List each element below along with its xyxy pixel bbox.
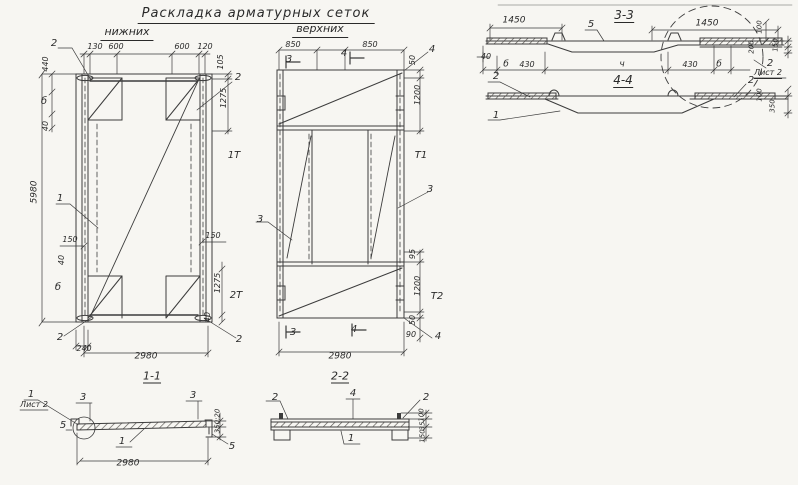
callout-mesh-2: 2: [235, 73, 241, 83]
section-title: 2-2: [331, 371, 349, 384]
dim-label: 430: [519, 61, 534, 69]
dim-label: 600: [108, 43, 123, 51]
callout-mesh-1: 1: [119, 437, 125, 447]
section-mark-1: Т1: [415, 151, 427, 161]
dim-label: 430: [682, 61, 697, 69]
dim-label: 600: [174, 43, 189, 51]
callout-mesh-3: 3: [257, 215, 263, 225]
callout-mesh-4: 4: [429, 45, 435, 55]
dim-label: 1200: [414, 276, 422, 296]
dim-label: 100: [757, 88, 764, 101]
callout-mesh-4: 4: [350, 389, 356, 399]
section-1-1: [20, 400, 228, 465]
dim-label: ч: [619, 61, 624, 70]
dim-label: 5980: [31, 181, 40, 204]
dim-label: 1200: [414, 85, 422, 105]
section-title: 4-4: [613, 74, 633, 88]
callout-mesh-1: 1: [28, 390, 34, 400]
dim-label: 1450: [696, 20, 719, 29]
callout-mesh-1: 1: [57, 194, 63, 204]
dim-label: 240: [76, 345, 91, 353]
callout-mesh-2: 2: [51, 39, 57, 49]
dim-label: 150: [420, 429, 427, 442]
dim-label: 440: [42, 56, 50, 71]
dim-label: 40: [42, 121, 50, 131]
section-title: 1-1: [143, 371, 161, 384]
sheet-ref: Лист 2: [754, 69, 782, 79]
plan-upper-meshes: [256, 47, 432, 356]
dim-label: 50: [409, 315, 417, 325]
dim-label: 2980: [135, 353, 158, 362]
dim-label: 100: [757, 20, 764, 33]
dim-label: 40: [204, 312, 212, 322]
dim-label: б: [503, 61, 509, 70]
section-mark-3: 3: [286, 55, 292, 65]
callout-mesh-1: 1: [348, 434, 354, 444]
section-mark-1: 1Т: [228, 151, 240, 161]
callout-mesh-2: 2: [236, 335, 242, 345]
dim-label: 40: [58, 255, 66, 265]
dim-label: 1275: [214, 273, 222, 293]
dim-label: 40: [481, 53, 491, 61]
dim-label: 150: [773, 38, 780, 51]
callout-mesh-4: 4: [435, 332, 441, 342]
callout-mesh-2: 2: [272, 393, 278, 403]
subtitle-upper-meshes: верхних: [292, 22, 348, 38]
dim-label: 2980: [329, 353, 352, 362]
section-mark-2: 2Т: [230, 291, 242, 301]
drawing-linework: [0, 0, 798, 485]
dim-label: 200: [749, 40, 756, 53]
callout-mesh-2: 2: [748, 76, 754, 86]
dim-label: 850: [362, 41, 377, 49]
dim-label: б: [55, 283, 61, 293]
dim-label: 120: [197, 43, 212, 51]
section-title: 3-3: [614, 9, 634, 23]
dim-label: 95: [409, 249, 417, 259]
plan-lower-meshes: [39, 48, 236, 357]
dim-label: 100: [419, 408, 426, 421]
callout-mesh-5: 5: [60, 421, 66, 431]
dim-label: 350;20: [215, 409, 222, 434]
section-mark-4: 4: [341, 49, 347, 59]
section-mark-2: Т2: [431, 292, 443, 302]
callout-mesh-2: 2: [57, 333, 63, 343]
callout-mesh-3: 3: [80, 393, 86, 403]
drawing-sheet: Раскладка арматурных сеток нижних верхни…: [0, 0, 798, 485]
dim-label: 150: [62, 236, 77, 244]
dim-label: 350: [770, 99, 777, 112]
dim-label: 50: [409, 55, 417, 65]
section-mark-4: 4: [351, 325, 357, 335]
dim-label: 130: [87, 43, 102, 51]
dim-label: 105: [217, 54, 225, 69]
section-4-4: [486, 82, 792, 120]
section-mark-3: 3: [290, 328, 296, 338]
dim-label: 850: [285, 41, 300, 49]
callout-mesh-1: 1: [493, 111, 499, 121]
dim-label: 150: [205, 232, 220, 240]
callout-mesh-5: 5: [229, 442, 235, 452]
dim-label: 2980: [117, 460, 140, 469]
callout-mesh-3: 3: [427, 185, 433, 195]
callout-mesh-3: 3: [190, 391, 196, 401]
sheet-ref: Лист 2: [20, 401, 48, 409]
callout-mesh-2: 2: [493, 72, 499, 82]
dim-label: 1450: [503, 17, 526, 26]
callout-mesh-5: 5: [588, 20, 594, 30]
subtitle-lower-meshes: нижних: [100, 25, 153, 41]
dim-label: б: [41, 97, 47, 107]
dim-label: 90: [406, 331, 416, 339]
dim-label: 1275: [220, 88, 228, 108]
dim-label: б: [716, 61, 722, 70]
callout-mesh-2: 2: [423, 393, 429, 403]
